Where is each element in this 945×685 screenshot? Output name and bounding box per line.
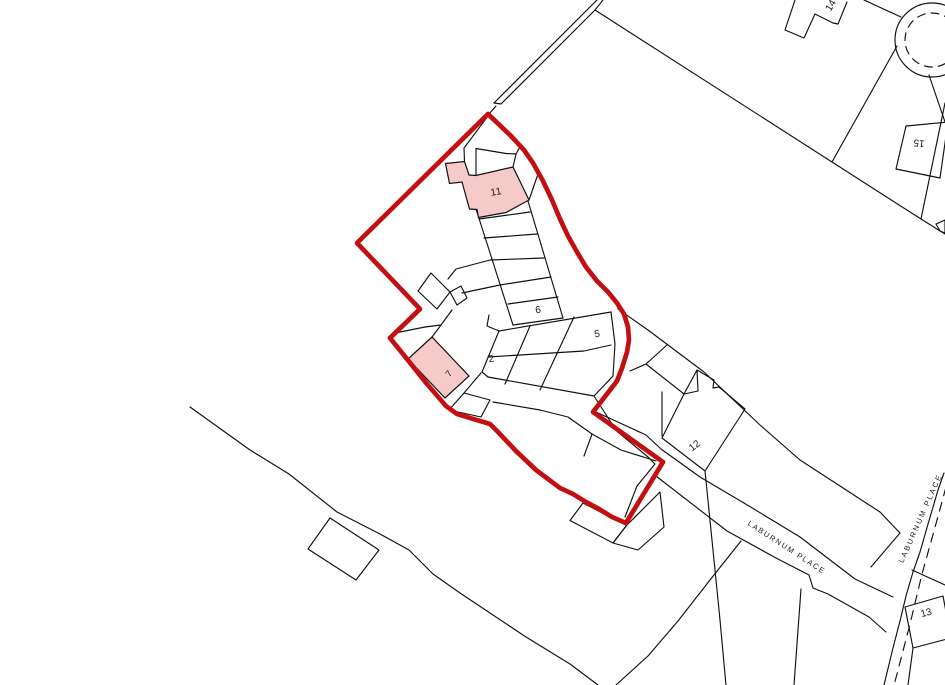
svg-text:15: 15 (913, 136, 926, 148)
svg-text:11: 11 (490, 186, 503, 199)
